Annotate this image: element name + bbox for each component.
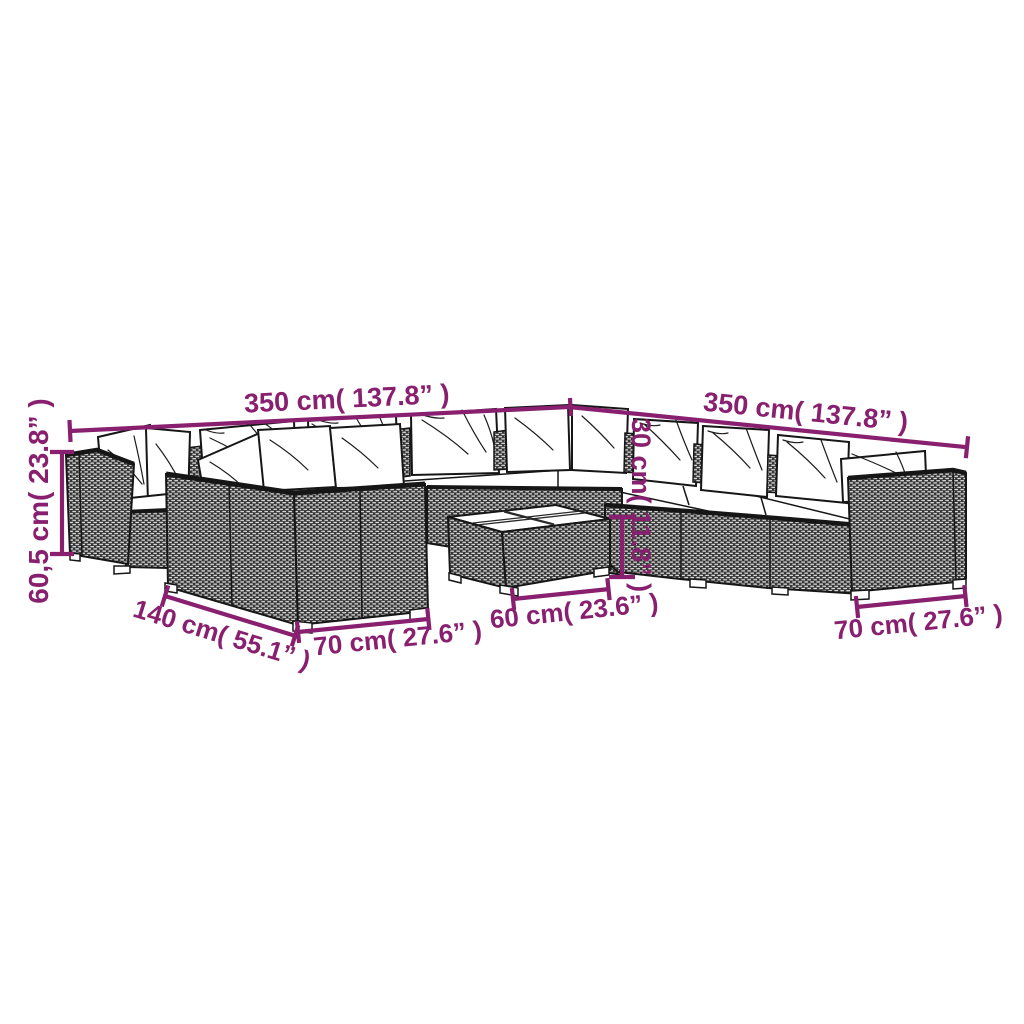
svg-text:60,5 cm( 23.8” ): 60,5 cm( 23.8” ) bbox=[23, 398, 54, 603]
svg-text:30 cm( 11.8” ): 30 cm( 11.8” ) bbox=[626, 418, 656, 592]
